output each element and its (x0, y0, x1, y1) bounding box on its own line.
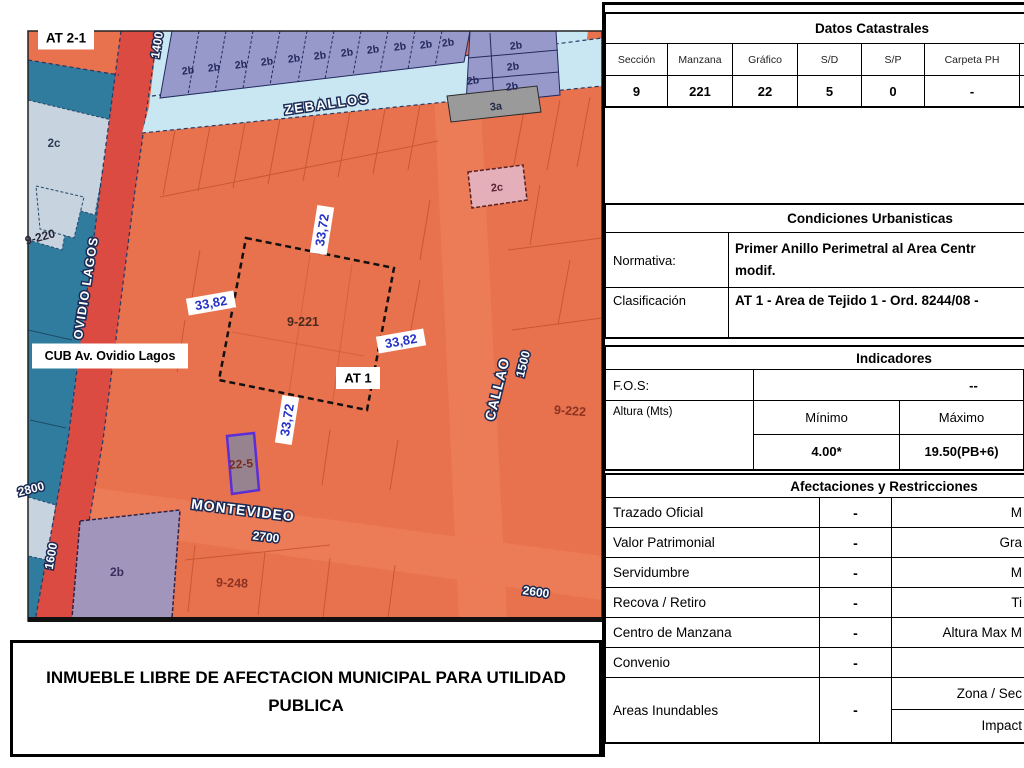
zone-label-2b-1: 2b (181, 64, 195, 77)
value-sd: 5 (797, 76, 861, 106)
panel-top-rule (602, 2, 1024, 5)
svg-text:2c: 2c (48, 138, 61, 150)
afectacion-dash-valor: - (819, 528, 891, 557)
parcel-label-9-248: 9-248 (216, 575, 248, 590)
condiciones-table: Condiciones Urbanisticas Normativa: Prim… (604, 203, 1024, 339)
afectacion-right-valor: Gra (891, 528, 1024, 557)
value-seccion: 9 (606, 76, 667, 106)
zone-label-2b-6: 2b (313, 49, 327, 62)
afectaciones-table: Afectaciones y Restricciones Trazado Ofi… (604, 473, 1024, 744)
svg-text:2b: 2b (505, 80, 519, 93)
afectacion-right-centro: Altura Max M (891, 618, 1024, 647)
svg-text:2b: 2b (287, 52, 301, 65)
zone-label-2b-purple: 2b (110, 565, 124, 579)
svg-text:2b: 2b (393, 40, 407, 53)
zone-label-2b-7: 2b (340, 46, 354, 59)
col-header-manzana: Manzana (667, 44, 732, 75)
svg-text:2b: 2b (207, 61, 221, 74)
statement-line1: INMUEBLE LIBRE DE AFECTACION MUNICIPAL P… (46, 664, 566, 692)
cub-annotation: CUB Av. Ovidio Lagos (32, 344, 188, 369)
datos-catastrales-table: Datos Catastrales Sección Manzana Gráfic… (604, 12, 1024, 108)
fos-value: -- (753, 370, 1023, 400)
svg-text:2b: 2b (441, 36, 455, 49)
zone-label-2b-11: 2b (441, 36, 455, 49)
zone-label-2b-2: 2b (207, 61, 221, 74)
svg-text:9-248: 9-248 (216, 575, 248, 590)
zone-badge-at-1: AT 1 (336, 367, 380, 389)
col-header-grafico: Gráfico (732, 44, 797, 75)
altura-min-value: 4.00* (754, 435, 899, 469)
zone-label-2b-3: 2b (234, 58, 248, 71)
afectacion-right-convenio (891, 648, 1024, 677)
altura-max-header: Máximo (899, 401, 1023, 434)
afectacion-right-recova: Ti (891, 588, 1024, 617)
statement-box: INMUEBLE LIBRE DE AFECTACION MUNICIPAL P… (10, 640, 602, 757)
zone-label-2b-10: 2b (419, 38, 433, 51)
afectacion-label-convenio: Convenio (606, 648, 819, 677)
value-cut (1019, 76, 1024, 106)
afectacion-dash-centro: - (819, 618, 891, 647)
svg-text:2b: 2b (419, 38, 433, 51)
svg-text:2b: 2b (260, 55, 274, 68)
zone-label-2b-9: 2b (393, 40, 407, 53)
areas-right-impacto: Impact (892, 709, 1024, 742)
afectacion-dash-convenio: - (819, 648, 891, 677)
afectaciones-title: Afectaciones y Restricciones (606, 475, 1024, 497)
zone-label-2b-stack1: 2b (509, 39, 523, 52)
col-header-cut (1019, 44, 1024, 75)
col-header-sd: S/D (797, 44, 861, 75)
svg-text:AT 1: AT 1 (344, 371, 371, 386)
svg-text:2b: 2b (466, 74, 480, 87)
afectacion-dash-areas: - (819, 678, 891, 742)
value-sp: 0 (861, 76, 924, 106)
svg-text:AT 2-1: AT 2-1 (46, 31, 87, 46)
value-carpeta-ph: - (924, 76, 1019, 106)
afectacion-dash-trazado: - (819, 498, 891, 527)
afectacion-dash-recova: - (819, 588, 891, 617)
svg-text:9-221: 9-221 (287, 315, 319, 329)
areas-right-zona: Zona / Sec (892, 678, 1024, 709)
normativa-label: Normativa: (606, 233, 728, 287)
svg-text:2b: 2b (181, 64, 195, 77)
col-header-carpeta-ph: Carpeta PH (924, 44, 1019, 75)
svg-text:22-5: 22-5 (229, 456, 254, 472)
datos-catastrales-title: Datos Catastrales (606, 14, 1024, 43)
svg-text:2b: 2b (234, 58, 248, 71)
svg-text:2b: 2b (110, 565, 124, 579)
indicadores-table: Indicadores F.O.S: -- Altura (Mts) Mínim… (604, 345, 1024, 471)
zone-label-2b-stack2: 2b (506, 60, 520, 73)
zone-label-3a: 3a (489, 100, 503, 113)
indicadores-title: Indicadores (606, 347, 1024, 369)
altura-label: Altura (Mts) (606, 401, 753, 469)
afectacion-label-recova: Recova / Retiro (606, 588, 819, 617)
condiciones-title: Condiciones Urbanisticas (606, 205, 1024, 232)
col-header-seccion: Sección (606, 44, 667, 75)
svg-text:2b: 2b (506, 60, 520, 73)
normativa-value-line2: modif. (735, 260, 776, 282)
svg-text:2b: 2b (313, 49, 327, 62)
normativa-value-line1: Primer Anillo Perimetral al Area Centr (735, 238, 976, 260)
parcel-2b-purple (72, 510, 180, 618)
afectacion-label-areas: Areas Inundables (606, 678, 819, 742)
col-header-sp: S/P (861, 44, 924, 75)
value-manzana: 221 (667, 76, 732, 106)
afectacion-label-servidumbre: Servidumbre (606, 558, 819, 587)
parcel-label-9-222: 9-222 (554, 403, 587, 419)
svg-text:9-222: 9-222 (554, 403, 587, 419)
svg-text:2b: 2b (366, 43, 380, 56)
svg-text:2b: 2b (509, 39, 523, 52)
zone-badge-at-2-1: AT 2-1 (38, 27, 94, 50)
afectacion-label-trazado: Trazado Oficial (606, 498, 819, 527)
altura-min-header: Mínimo (754, 401, 899, 434)
svg-text:2b: 2b (340, 46, 354, 59)
afectacion-label-centro: Centro de Manzana (606, 618, 819, 647)
afectacion-dash-servidumbre: - (819, 558, 891, 587)
svg-text:2c: 2c (490, 181, 503, 194)
afectacion-label-valor: Valor Patrimonial (606, 528, 819, 557)
clasificacion-label: Clasificación (606, 288, 728, 337)
parcel-label-9-221: 9-221 (287, 315, 319, 329)
afectacion-right-servidumbre: M (891, 558, 1024, 587)
zone-label-2b-stack3: 2b (505, 80, 519, 93)
afectacion-right-trazado: M (891, 498, 1024, 527)
svg-text:CUB Av. Ovidio Lagos: CUB Av. Ovidio Lagos (45, 349, 176, 363)
svg-text:3a: 3a (489, 100, 503, 113)
statement-line2: PUBLICA (268, 692, 344, 720)
zone-label-2b-4: 2b (260, 55, 274, 68)
zone-label-2c-left: 2c (48, 138, 61, 150)
zone-label-2b-8: 2b (366, 43, 380, 56)
altura-max-value: 19.50(PB+6) (899, 435, 1023, 469)
fos-label: F.O.S: (606, 370, 753, 400)
value-grafico: 22 (732, 76, 797, 106)
clasificacion-value: AT 1 - Area de Tejido 1 - Ord. 8244/08 - (728, 288, 1024, 337)
map-bottom-rule (28, 617, 602, 622)
zone-label-2b-5: 2b (287, 52, 301, 65)
zone-label-2c-pink: 2c (490, 181, 503, 194)
zone-label-2b-stackleft: 2b (466, 74, 480, 87)
parcel-label-22-5: 22-5 (229, 456, 254, 472)
